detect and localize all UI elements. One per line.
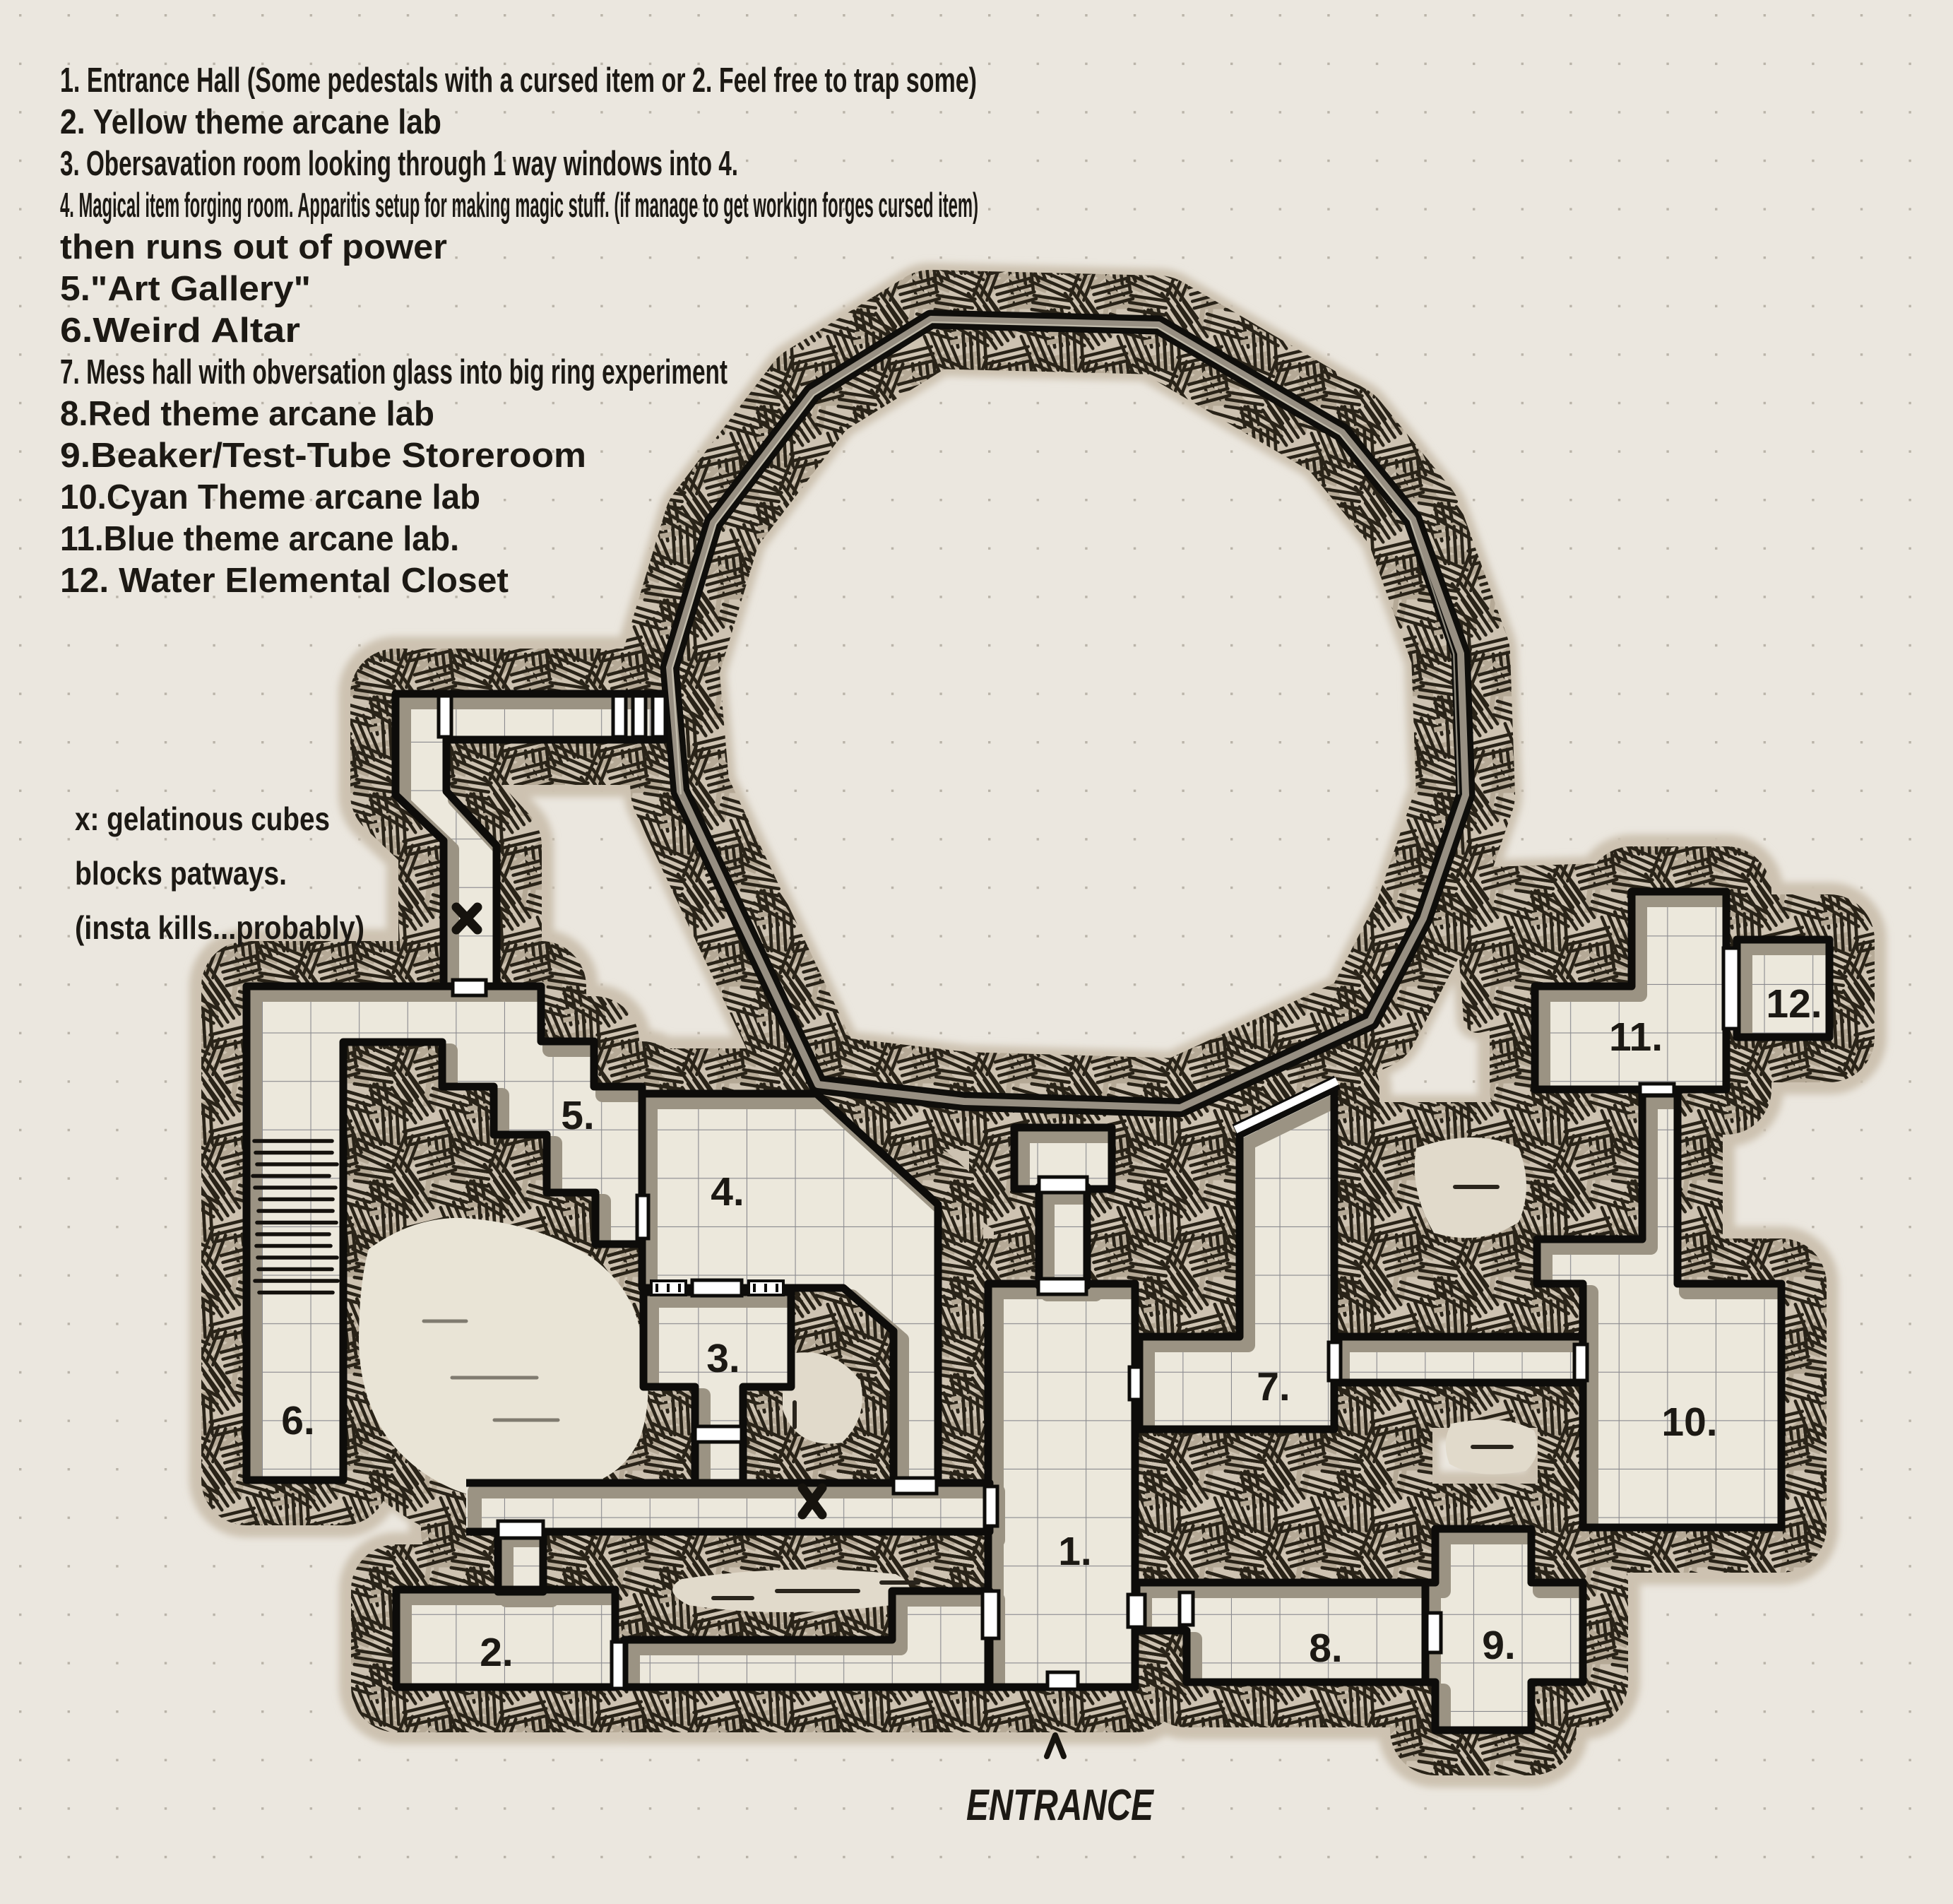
svg-text:10.: 10. xyxy=(1661,1400,1717,1445)
svg-text:11.: 11. xyxy=(1609,1015,1663,1060)
svg-text:2.: 2. xyxy=(480,1630,514,1675)
svg-text:5."Art Gallery": 5."Art Gallery" xyxy=(60,270,311,308)
svg-text:1. Entrance Hall (Some pedesta: 1. Entrance Hall (Some pedestals with a … xyxy=(60,61,977,100)
svg-text:8.: 8. xyxy=(1309,1626,1343,1671)
svg-text:6.: 6. xyxy=(281,1398,315,1443)
svg-text:3.: 3. xyxy=(706,1336,740,1381)
svg-text:12.: 12. xyxy=(1766,981,1822,1027)
svg-text:11.Blue theme arcane lab.: 11.Blue theme arcane lab. xyxy=(60,520,459,558)
svg-text:7. Mess hall with obversation: 7. Mess hall with obversation glass into… xyxy=(60,353,728,391)
svg-text:then runs out of power: then runs out of power xyxy=(60,228,447,266)
svg-text:blocks patways.: blocks patways. xyxy=(75,855,287,892)
svg-text:3. Obersavation room looking t: 3. Obersavation room looking through 1 w… xyxy=(60,145,738,183)
svg-text:4. Magical item forging room.: 4. Magical item forging room. Apparitis … xyxy=(60,187,978,225)
svg-text:x: gelatinous cubes: x: gelatinous cubes xyxy=(75,800,330,837)
svg-text:7.: 7. xyxy=(1257,1364,1290,1409)
svg-text:10.Cyan Theme arcane lab: 10.Cyan Theme arcane lab xyxy=(60,478,480,516)
svg-text:5.: 5. xyxy=(561,1093,595,1138)
svg-text:4.: 4. xyxy=(711,1169,744,1214)
svg-text:(insta kills...probably): (insta kills...probably) xyxy=(75,909,364,946)
svg-text:1.: 1. xyxy=(1058,1529,1092,1574)
svg-text:8.Red theme arcane lab: 8.Red theme arcane lab xyxy=(60,395,434,433)
svg-text:ENTRANCE: ENTRANCE xyxy=(966,1781,1154,1830)
svg-text:9.: 9. xyxy=(1482,1623,1516,1668)
svg-text:6.Weird Altar: 6.Weird Altar xyxy=(60,312,300,350)
svg-text:9.Beaker/Test-Tube Storeroom: 9.Beaker/Test-Tube Storeroom xyxy=(60,437,586,475)
svg-text:12. Water Elemental Closet: 12. Water Elemental Closet xyxy=(60,562,509,600)
svg-text:2. Yellow theme arcane lab: 2. Yellow theme arcane lab xyxy=(60,103,441,141)
